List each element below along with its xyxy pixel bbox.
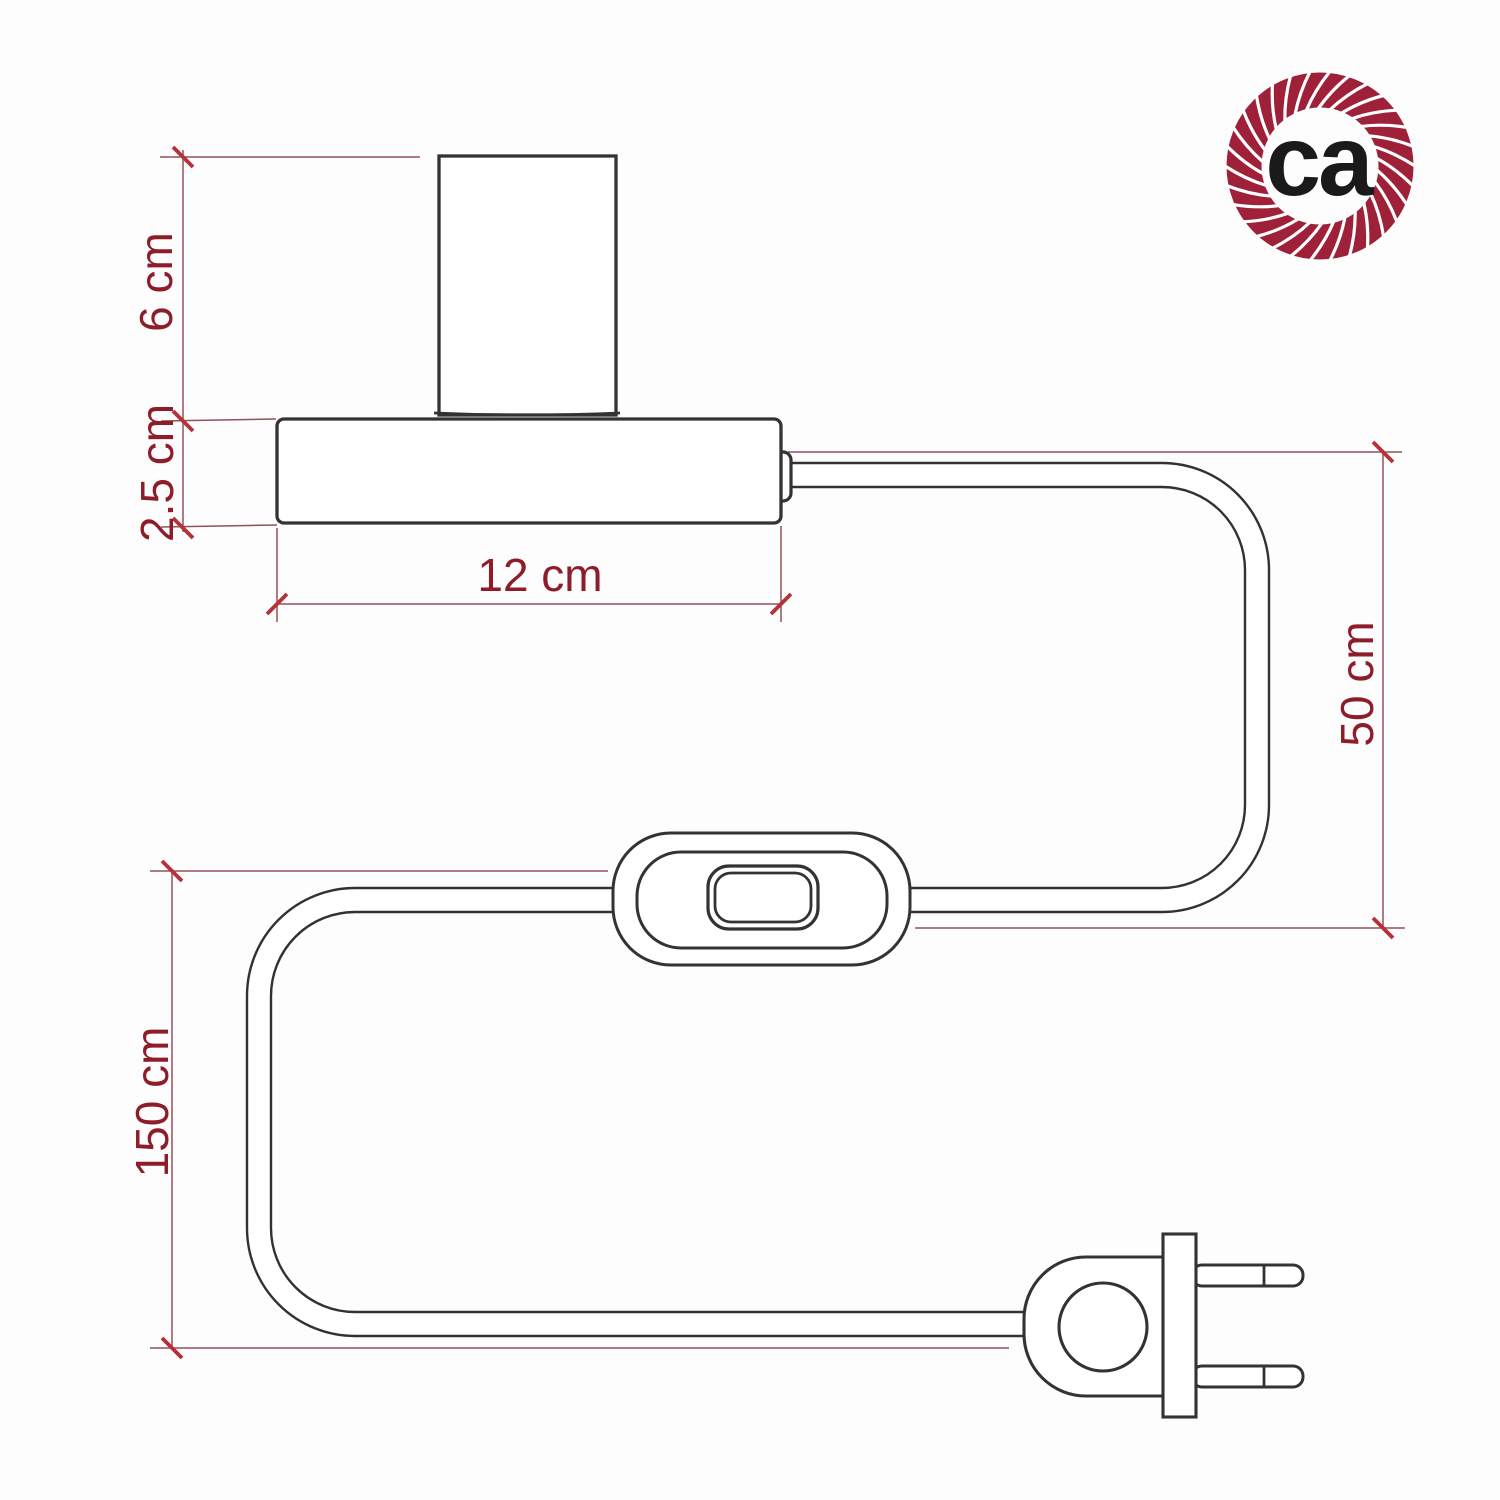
svg-text:150 cm: 150 cm [126,1027,178,1178]
svg-text:12 cm: 12 cm [477,549,602,601]
svg-text:2.5 cm: 2.5 cm [131,404,183,542]
svg-text:ca: ca [1265,105,1375,217]
svg-text:6 cm: 6 cm [130,232,182,332]
svg-text:50 cm: 50 cm [1331,621,1383,746]
